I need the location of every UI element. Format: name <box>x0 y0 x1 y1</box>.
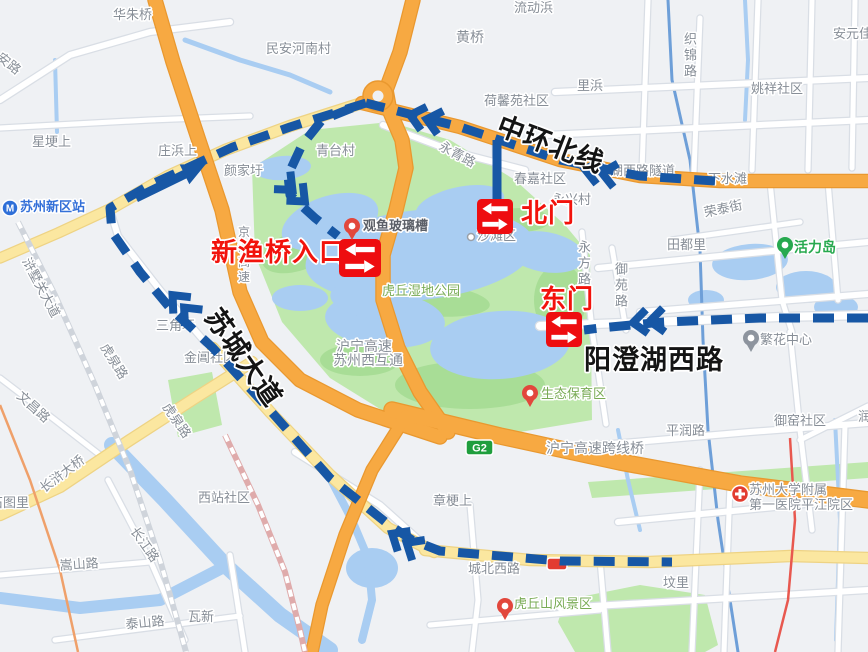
map-label: 嵩山路 <box>59 555 99 573</box>
gate-arrow-right-icon <box>482 222 498 227</box>
gate-arrow-left-icon <box>560 319 576 324</box>
xinyuqiao-entrance-gate-icon[interactable] <box>339 239 381 277</box>
map-canvas[interactable]: 华朱桥安路民安河南村黄桥流动浜织锦路安元佳苑里浜姚祥社区荷馨苑社区星埂上庄浜上颜… <box>0 0 868 652</box>
g2-expressway-badge: G2 <box>466 440 493 455</box>
map-label: 新渔桥入口 <box>211 237 346 267</box>
map-label: 虎丘山风景区 <box>514 596 592 611</box>
map-label: 流动浜 <box>514 0 553 15</box>
map-label: 石图里 <box>0 495 29 510</box>
map-label: 颜家圩 <box>224 163 263 178</box>
gate-icon-bg <box>546 312 582 347</box>
cross-icon <box>739 489 742 499</box>
pin-glyph <box>349 223 356 230</box>
map-svg[interactable]: 华朱桥安路民安河南村黄桥流动浜织锦路安元佳苑里浜姚祥社区荷馨苑社区星埂上庄浜上颜… <box>0 0 868 652</box>
map-label: 安元佳苑 <box>833 26 868 41</box>
map-label: 苏州大学附属 <box>749 482 827 497</box>
hospital-pin[interactable] <box>732 486 749 503</box>
map-label: 姚祥社区 <box>751 81 803 96</box>
map-label: 沪宁高速跨线桥 <box>546 440 644 456</box>
map-label: 坟里 <box>663 575 689 590</box>
map-label: 田都里 <box>667 237 706 252</box>
metro-glyph: M <box>6 204 14 215</box>
gate-icon-bg <box>339 239 381 277</box>
badge-text: G2 <box>472 443 487 455</box>
gate-icon-bg <box>477 199 513 234</box>
map-label: 织锦路 <box>684 32 697 79</box>
map-label: 城北西路 <box>468 561 520 576</box>
map-label: 华朱桥 <box>113 7 152 22</box>
map-label: 御窑社区 <box>774 413 826 428</box>
lake <box>272 285 328 311</box>
map-label: 御苑路 <box>615 262 628 309</box>
map-label: 青台村 <box>316 143 355 158</box>
map-label: 荷馨苑社区 <box>484 93 549 108</box>
beach-area-dot[interactable] <box>468 234 475 241</box>
map-label: 活力岛 <box>794 239 836 255</box>
roundabout-center <box>373 91 384 102</box>
map-label: 里浜 <box>577 78 603 93</box>
gate-arrow-left-icon <box>356 247 375 252</box>
gate-arrow-right-icon <box>551 335 567 340</box>
map-label: 西站社区 <box>198 490 250 505</box>
map-label: 瓦新 <box>188 609 214 624</box>
map-label: 春嘉社区 <box>514 171 566 186</box>
map-label: 永方路 <box>578 240 591 287</box>
map-label: 苏州新区站 <box>20 199 85 214</box>
map-label: 黄桥 <box>456 29 484 45</box>
map-label: 润 <box>858 409 868 424</box>
map-label: 平润路 <box>666 423 705 438</box>
pin-glyph <box>782 242 789 249</box>
map-label: 东门 <box>540 284 594 314</box>
gate-arrow-left-icon <box>491 206 507 211</box>
map-label: 观鱼玻璃槽 <box>363 218 428 233</box>
map-label: 庄浜上 <box>158 143 197 158</box>
waterway <box>55 60 57 132</box>
pin-glyph <box>527 390 534 397</box>
gate-arrow-right-icon <box>345 264 364 269</box>
map-label: 星埂上 <box>32 134 71 149</box>
map-label: 繁花中心 <box>760 332 812 347</box>
map-label: 章梗上 <box>433 493 472 508</box>
pin-glyph <box>502 603 509 610</box>
map-label: 民安河南村 <box>266 41 331 56</box>
east-gate-icon[interactable] <box>546 312 582 347</box>
map-label: 第一医院平江院区 <box>749 497 853 512</box>
map-label: 苏州西互通 <box>333 352 403 368</box>
north-gate-icon[interactable] <box>477 199 513 234</box>
pin-glyph <box>748 335 755 342</box>
map-label: 阳澄湖西路 <box>584 344 724 375</box>
map-label: 虎丘湿地公园 <box>382 283 460 298</box>
metro-station-icon[interactable]: M <box>2 200 18 216</box>
map-label: 北门 <box>521 199 575 228</box>
map-label: 生态保育区 <box>541 386 606 401</box>
